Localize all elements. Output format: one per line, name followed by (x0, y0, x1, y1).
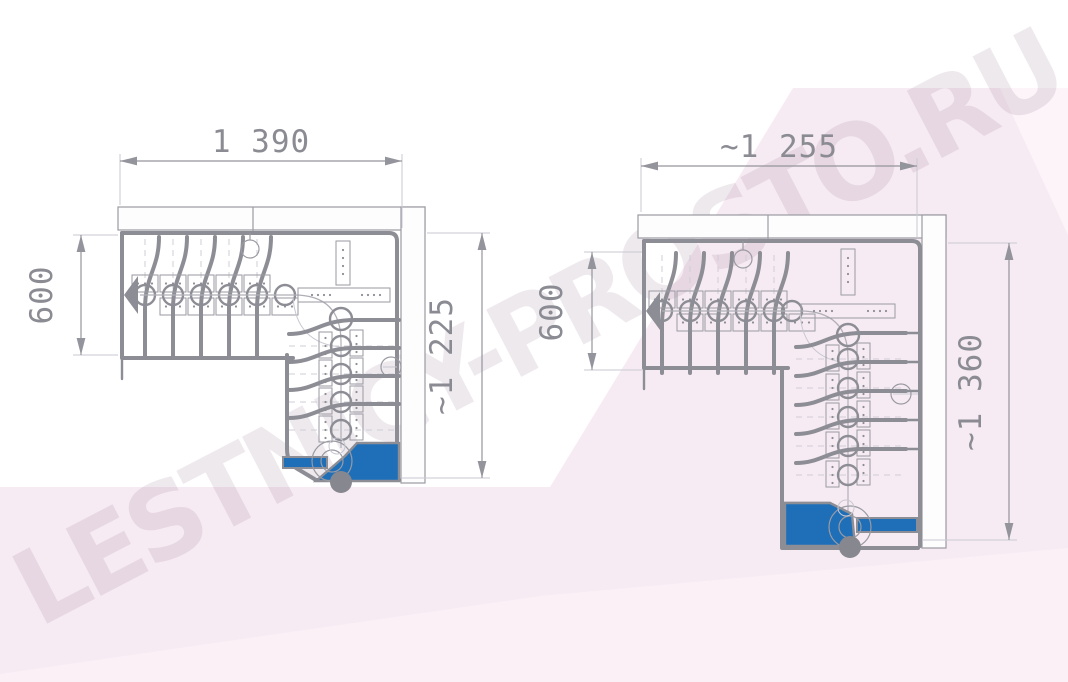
blueprint-canvas: LESTNICY-PROSTO.RU (0, 0, 1068, 682)
left-blue-step-strip (283, 457, 327, 468)
left-dimension-left: 600 (24, 235, 118, 355)
right-newel-pole (839, 536, 861, 558)
left-blue-landing-step (316, 443, 399, 481)
left-newel-pole (330, 471, 352, 493)
left-stair-drawing: 1 390 600 ~1 225 (24, 124, 490, 493)
left-dim-depth-label: 600 (24, 266, 60, 325)
right-dim-width-label: ~1 255 (720, 129, 838, 165)
right-stair-body (644, 241, 920, 548)
right-dim-depth-label: 600 (534, 283, 570, 342)
left-dim-width-label: 1 390 (212, 124, 310, 160)
entry-direction-arrow (124, 276, 138, 314)
right-blue-step-strip (857, 518, 917, 532)
stair-plans-svg: 1 390 600 ~1 225 (0, 0, 1068, 682)
entry-direction-arrow (646, 292, 660, 330)
left-dim-length-label: ~1 225 (424, 297, 460, 415)
right-dimension-left: 600 (534, 252, 642, 370)
right-dim-length-label: ~1 360 (953, 333, 989, 451)
right-stair-drawing: ~1 255 600 ~1 360 (534, 129, 1017, 558)
right-walls (638, 215, 946, 548)
